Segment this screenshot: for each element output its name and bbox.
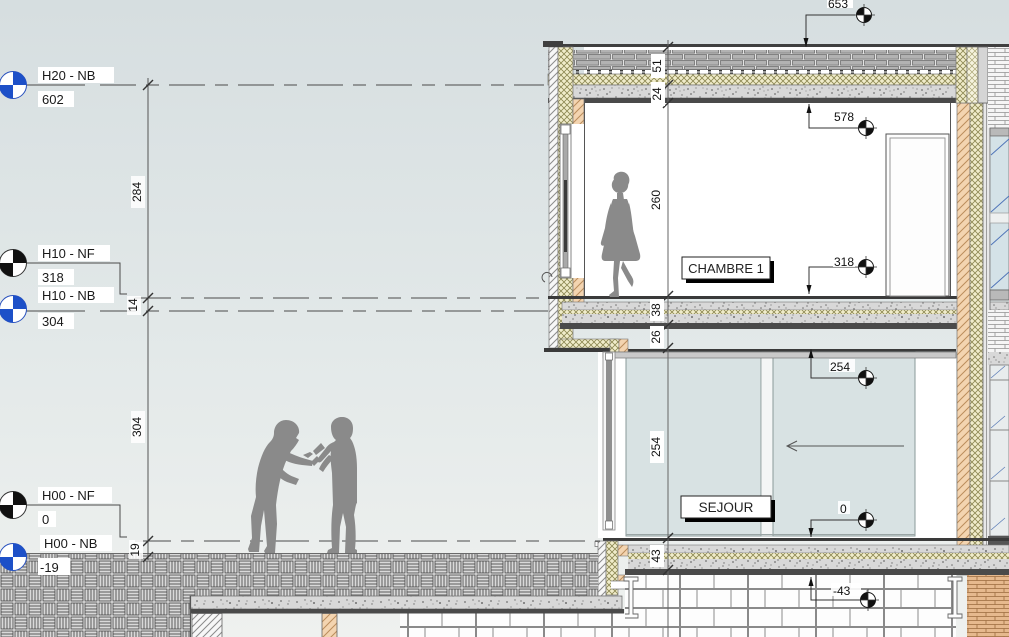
svg-text:38: 38 bbox=[649, 303, 663, 317]
svg-text:24: 24 bbox=[650, 87, 664, 101]
svg-text:H20 - NB: H20 - NB bbox=[42, 68, 95, 83]
svg-text:14: 14 bbox=[126, 298, 140, 312]
svg-text:26: 26 bbox=[649, 330, 663, 344]
svg-text:578: 578 bbox=[834, 110, 854, 124]
svg-text:0: 0 bbox=[840, 502, 847, 516]
svg-text:H00 - NB: H00 - NB bbox=[44, 536, 97, 551]
svg-text:602: 602 bbox=[42, 92, 64, 107]
svg-text:318: 318 bbox=[42, 270, 64, 285]
svg-text:SEJOUR: SEJOUR bbox=[699, 500, 754, 515]
svg-text:-19: -19 bbox=[40, 560, 59, 575]
svg-text:-43: -43 bbox=[833, 584, 851, 598]
svg-text:284: 284 bbox=[130, 182, 144, 202]
svg-text:19: 19 bbox=[128, 543, 142, 557]
svg-text:254: 254 bbox=[649, 437, 663, 457]
svg-text:653: 653 bbox=[828, 0, 848, 11]
svg-text:H10 - NF: H10 - NF bbox=[42, 246, 95, 261]
svg-text:304: 304 bbox=[130, 417, 144, 437]
svg-text:260: 260 bbox=[649, 190, 663, 210]
svg-text:CHAMBRE 1: CHAMBRE 1 bbox=[688, 261, 764, 276]
svg-text:254: 254 bbox=[830, 360, 850, 374]
svg-text:51: 51 bbox=[650, 59, 664, 73]
svg-text:0: 0 bbox=[42, 512, 49, 527]
svg-text:304: 304 bbox=[42, 314, 64, 329]
svg-text:318: 318 bbox=[834, 255, 854, 269]
svg-text:H10 - NB: H10 - NB bbox=[42, 288, 95, 303]
svg-text:H00 - NF: H00 - NF bbox=[42, 488, 95, 503]
svg-text:43: 43 bbox=[649, 549, 663, 563]
